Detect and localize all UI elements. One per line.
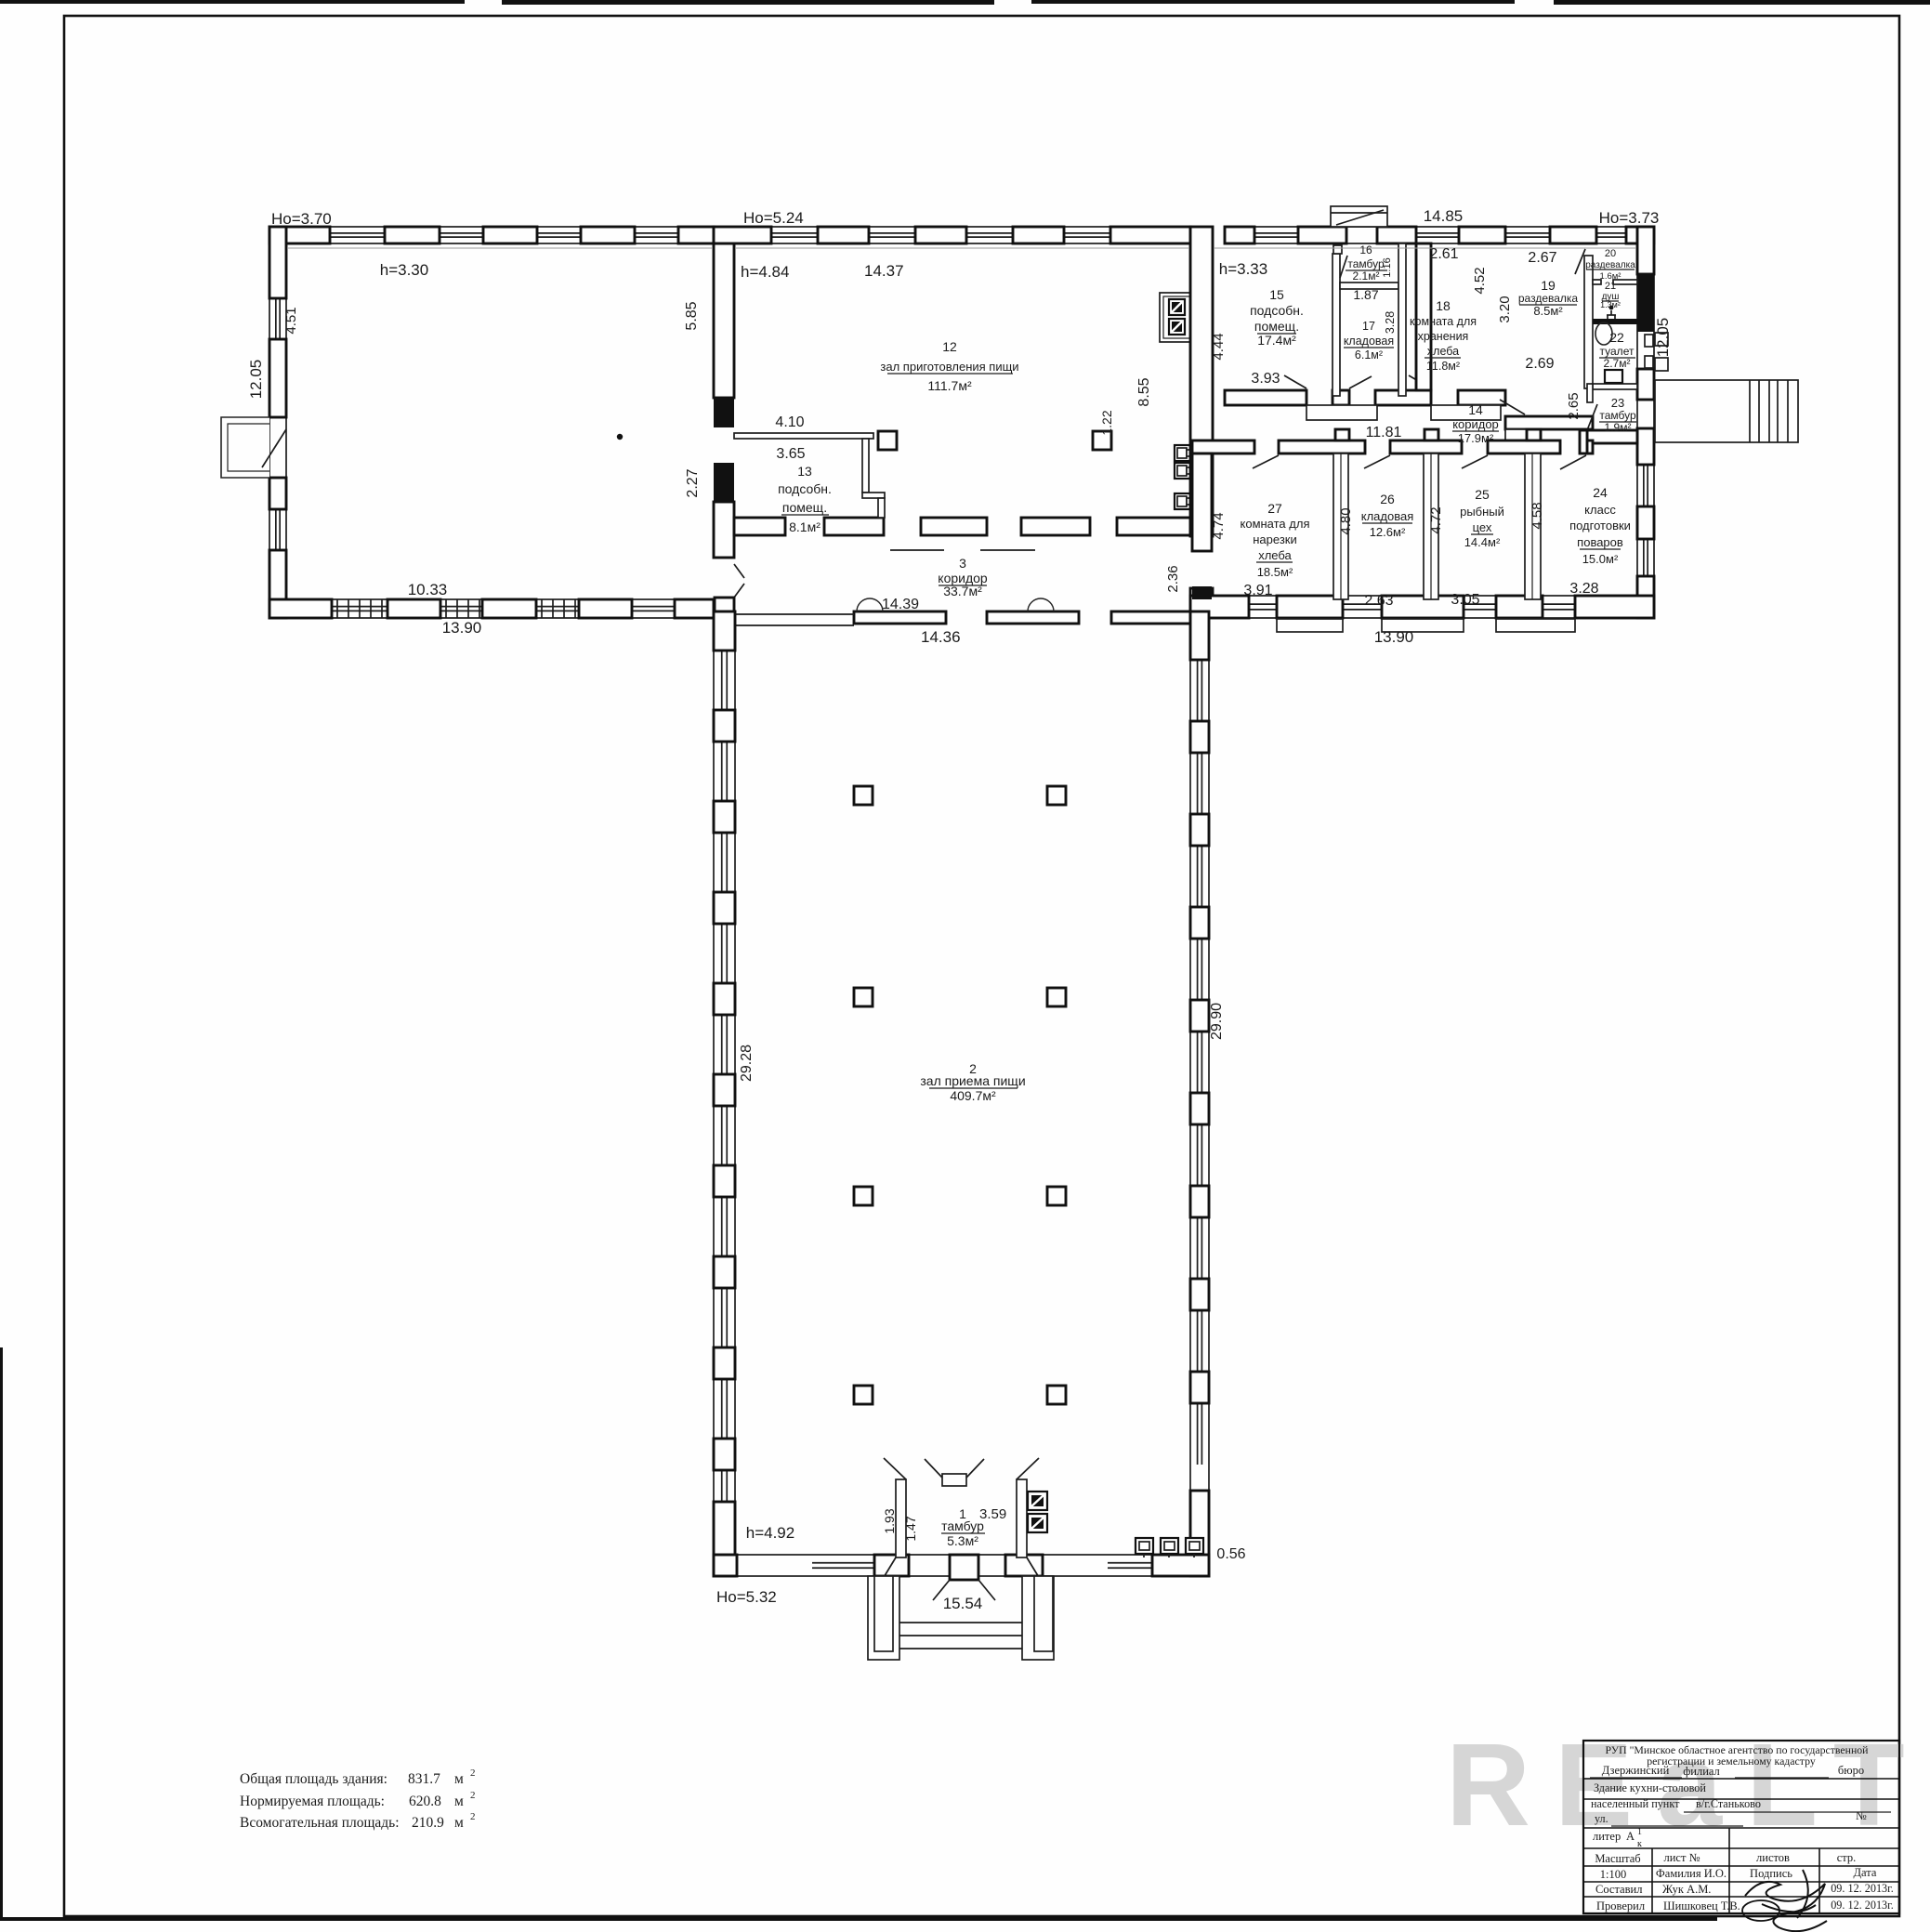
svg-text:Составил: Составил	[1595, 1883, 1642, 1896]
svg-text:09. 12. 2013г.: 09. 12. 2013г.	[1831, 1882, 1894, 1895]
svg-text:3: 3	[959, 556, 966, 571]
svg-text:зал приготовления пищи: зал приготовления пищи	[880, 360, 1018, 374]
svg-text:3.20: 3.20	[1497, 296, 1513, 322]
svg-text:21: 21	[1605, 281, 1616, 292]
svg-text:4.58: 4.58	[1530, 502, 1545, 529]
svg-text:лист №: лист №	[1664, 1851, 1700, 1864]
svg-text:комната для: комната для	[1410, 315, 1477, 328]
svg-text:Жук А.М.: Жук А.М.	[1662, 1883, 1711, 1896]
svg-text:4.80: 4.80	[1338, 507, 1354, 534]
svg-text:2: 2	[470, 1790, 476, 1801]
svg-text:14.39: 14.39	[882, 597, 919, 612]
svg-text:14: 14	[1468, 402, 1483, 417]
svg-text:Дата: Дата	[1854, 1866, 1877, 1879]
svg-text:h=4.84: h=4.84	[741, 263, 789, 281]
svg-text:13: 13	[797, 464, 812, 479]
svg-text:Но=3.73: Но=3.73	[1599, 209, 1660, 227]
svg-text:4.10: 4.10	[775, 414, 804, 430]
svg-text:тамбур: тамбур	[1599, 409, 1636, 422]
svg-text:стр.: стр.	[1837, 1851, 1857, 1864]
svg-text:6.1м²: 6.1м²	[1355, 348, 1383, 361]
svg-text:4.74: 4.74	[1211, 512, 1227, 539]
svg-text:А: А	[1626, 1830, 1635, 1843]
svg-text:2.69: 2.69	[1525, 356, 1554, 372]
svg-text:3.05: 3.05	[1451, 592, 1479, 608]
svg-text:4.51: 4.51	[283, 307, 299, 334]
svg-text:33.7м²: 33.7м²	[943, 584, 982, 598]
svg-text:409.7м²: 409.7м²	[950, 1088, 996, 1103]
svg-text:в/г.Станьково: в/г.Станьково	[1696, 1797, 1761, 1810]
svg-text:11.81: 11.81	[1366, 425, 1402, 440]
svg-text:11.8м²: 11.8м²	[1426, 360, 1460, 373]
svg-text:1:100: 1:100	[1600, 1868, 1626, 1881]
svg-text:2.61: 2.61	[1429, 246, 1458, 262]
svg-text:листов: листов	[1756, 1851, 1790, 1864]
svg-text:18.5м²: 18.5м²	[1257, 565, 1293, 579]
svg-text:13.90: 13.90	[442, 619, 482, 637]
svg-text:18: 18	[1436, 298, 1451, 313]
svg-text:бюро: бюро	[1838, 1764, 1864, 1777]
svg-text:комната для: комната для	[1241, 517, 1310, 531]
svg-text:15.54: 15.54	[943, 1595, 983, 1612]
svg-text:12.05: 12.05	[1654, 318, 1672, 358]
svg-text:h=3.30: h=3.30	[380, 261, 428, 279]
svg-text:зал приема пищи: зал приема пищи	[920, 1073, 1025, 1088]
svg-text:16: 16	[1359, 243, 1372, 256]
svg-text:тамбур: тамбур	[1347, 257, 1385, 270]
svg-text:2.67: 2.67	[1528, 250, 1556, 266]
svg-text:h=3.33: h=3.33	[1219, 260, 1267, 278]
svg-text:2: 2	[470, 1768, 476, 1779]
svg-text:2.1м²: 2.1м²	[1353, 269, 1380, 283]
svg-text:к: к	[1637, 1839, 1642, 1849]
svg-text:15: 15	[1269, 287, 1284, 302]
svg-text:14.85: 14.85	[1424, 207, 1464, 225]
svg-text:22: 22	[1609, 330, 1624, 345]
svg-text:2.27: 2.27	[685, 468, 701, 497]
svg-text:3.28: 3.28	[1569, 581, 1598, 597]
svg-text:помещ.: помещ.	[1254, 319, 1299, 334]
svg-text:раздевалка: раздевалка	[1518, 292, 1579, 305]
svg-text:филиал: филиал	[1683, 1765, 1720, 1778]
svg-text:2.63: 2.63	[1364, 593, 1393, 609]
svg-text:09. 12. 2013г.: 09. 12. 2013г.	[1831, 1899, 1894, 1912]
svg-text:Всомогательная площадь:: Всомогательная площадь:	[240, 1815, 400, 1831]
svg-text:12: 12	[942, 339, 957, 354]
svg-text:1.47: 1.47	[903, 1516, 918, 1541]
svg-text:подсобн.: подсобн.	[778, 481, 832, 496]
svg-text:2: 2	[470, 1811, 476, 1822]
svg-text:раздевалка: раздевалка	[1585, 260, 1635, 270]
svg-text:29.28: 29.28	[739, 1045, 755, 1082]
svg-text:регистрации и земельному кадас: регистрации и земельному кадастру	[1647, 1755, 1816, 1768]
svg-text:210.9: 210.9	[412, 1815, 444, 1831]
svg-text:14.4м²: 14.4м²	[1464, 535, 1501, 549]
svg-text:4.72: 4.72	[1428, 506, 1444, 533]
svg-text:27: 27	[1267, 501, 1282, 516]
svg-text:23: 23	[1611, 396, 1624, 410]
svg-text:1.9м²: 1.9м²	[1605, 421, 1632, 434]
svg-text:2.65: 2.65	[1566, 392, 1582, 419]
svg-text:0.56: 0.56	[1216, 1546, 1245, 1562]
svg-text:тамбур: тамбур	[941, 1518, 984, 1533]
svg-text:8.55: 8.55	[1136, 377, 1152, 406]
svg-text:24: 24	[1593, 485, 1608, 500]
svg-text:Здание кухни-столовой: Здание кухни-столовой	[1594, 1781, 1706, 1794]
svg-text:10.33: 10.33	[408, 581, 448, 598]
svg-text:17.4м²: 17.4м²	[1257, 333, 1296, 348]
svg-text:3.91: 3.91	[1243, 583, 1272, 598]
svg-text:населенный пункт: населенный пункт	[1591, 1797, 1680, 1810]
svg-text:1.16: 1.16	[1382, 257, 1393, 277]
svg-text:3.28: 3.28	[1384, 311, 1397, 334]
svg-text:3.59: 3.59	[979, 1506, 1006, 1522]
svg-text:h=4.92: h=4.92	[746, 1524, 794, 1542]
svg-text:Масштаб: Масштаб	[1595, 1852, 1640, 1865]
svg-text:класс: класс	[1584, 503, 1616, 517]
svg-text:Общая площадь здания:: Общая площадь здания:	[240, 1771, 387, 1787]
svg-text:20: 20	[1605, 248, 1616, 259]
svg-text:Но=5.24: Но=5.24	[743, 209, 804, 227]
svg-text:м: м	[454, 1794, 464, 1809]
svg-text:620.8: 620.8	[409, 1794, 441, 1809]
svg-text:8.1м²: 8.1м²	[789, 519, 821, 534]
svg-text:1.93: 1.93	[882, 1508, 897, 1533]
svg-text:4.44: 4.44	[1211, 333, 1227, 360]
svg-text:коридор: коридор	[1452, 417, 1499, 431]
svg-text:Фамилия И.О.: Фамилия И.О.	[1656, 1867, 1726, 1880]
svg-text:подсобн.: подсобн.	[1250, 303, 1304, 318]
svg-text:14.36: 14.36	[921, 628, 961, 646]
svg-text:17: 17	[1362, 320, 1375, 333]
svg-text:Шишковец Т.В.: Шишковец Т.В.	[1663, 1899, 1740, 1912]
svg-text:12.05: 12.05	[247, 360, 265, 400]
svg-text:19: 19	[1541, 278, 1556, 293]
svg-text:13.90: 13.90	[1374, 628, 1414, 646]
svg-text:26: 26	[1380, 492, 1395, 506]
svg-text:2.36: 2.36	[1165, 565, 1181, 592]
svg-text:15.0м²: 15.0м²	[1582, 552, 1619, 566]
svg-text:1: 1	[1637, 1827, 1642, 1837]
svg-text:Но=3.70: Но=3.70	[271, 210, 332, 228]
svg-text:8.5м²: 8.5м²	[1533, 304, 1563, 318]
svg-text:5.85: 5.85	[684, 301, 700, 330]
svg-text:литер: литер	[1593, 1830, 1621, 1843]
svg-text:Дзержинский: Дзержинский	[1602, 1764, 1670, 1777]
svg-text:1.87: 1.87	[1353, 287, 1378, 302]
svg-text:14.37: 14.37	[864, 262, 904, 280]
svg-text:17.9м²: 17.9м²	[1458, 431, 1494, 445]
svg-text:3.93: 3.93	[1251, 371, 1280, 387]
svg-text:Проверил: Проверил	[1596, 1899, 1645, 1912]
svg-text:12.6м²: 12.6м²	[1370, 525, 1406, 539]
svg-text:5.3м²: 5.3м²	[947, 1533, 978, 1548]
svg-text:помещ.: помещ.	[782, 500, 827, 515]
svg-text:831.7: 831.7	[408, 1771, 440, 1787]
svg-text:25: 25	[1475, 487, 1490, 502]
svg-text:111.7м²: 111.7м²	[927, 378, 972, 393]
svg-text:4.52: 4.52	[1472, 267, 1488, 294]
svg-text:кладовая: кладовая	[1344, 335, 1394, 348]
svg-text:2.7м²: 2.7м²	[1604, 357, 1631, 370]
svg-text:хлеба: хлеба	[1258, 548, 1292, 562]
svg-text:Нормируемая площадь:: Нормируемая площадь:	[240, 1794, 385, 1809]
svg-text:ул.: ул.	[1595, 1812, 1608, 1825]
svg-text:хлеба: хлеба	[1427, 345, 1459, 358]
svg-text:1.3м²: 1.3м²	[1600, 300, 1621, 309]
svg-text:цех: цех	[1473, 520, 1492, 534]
svg-text:подготовки: подготовки	[1569, 519, 1631, 532]
svg-text:3.65: 3.65	[776, 446, 805, 462]
svg-text:Но=5.32: Но=5.32	[716, 1588, 777, 1606]
svg-text:туалет: туалет	[1600, 345, 1635, 358]
svg-text:нарезки: нарезки	[1253, 532, 1297, 546]
svg-text:кладовая: кладовая	[1361, 509, 1414, 523]
svg-text:м: м	[454, 1815, 464, 1831]
svg-text:29.90: 29.90	[1209, 1003, 1225, 1040]
svg-text:№: №	[1856, 1809, 1867, 1822]
svg-text:м: м	[454, 1771, 464, 1787]
svg-text:поваров: поваров	[1577, 535, 1623, 549]
svg-text:рыбный: рыбный	[1460, 505, 1504, 519]
svg-text:Подпись: Подпись	[1750, 1867, 1792, 1880]
svg-text:1.22: 1.22	[1099, 410, 1114, 435]
svg-text:хранения: хранения	[1418, 330, 1469, 343]
